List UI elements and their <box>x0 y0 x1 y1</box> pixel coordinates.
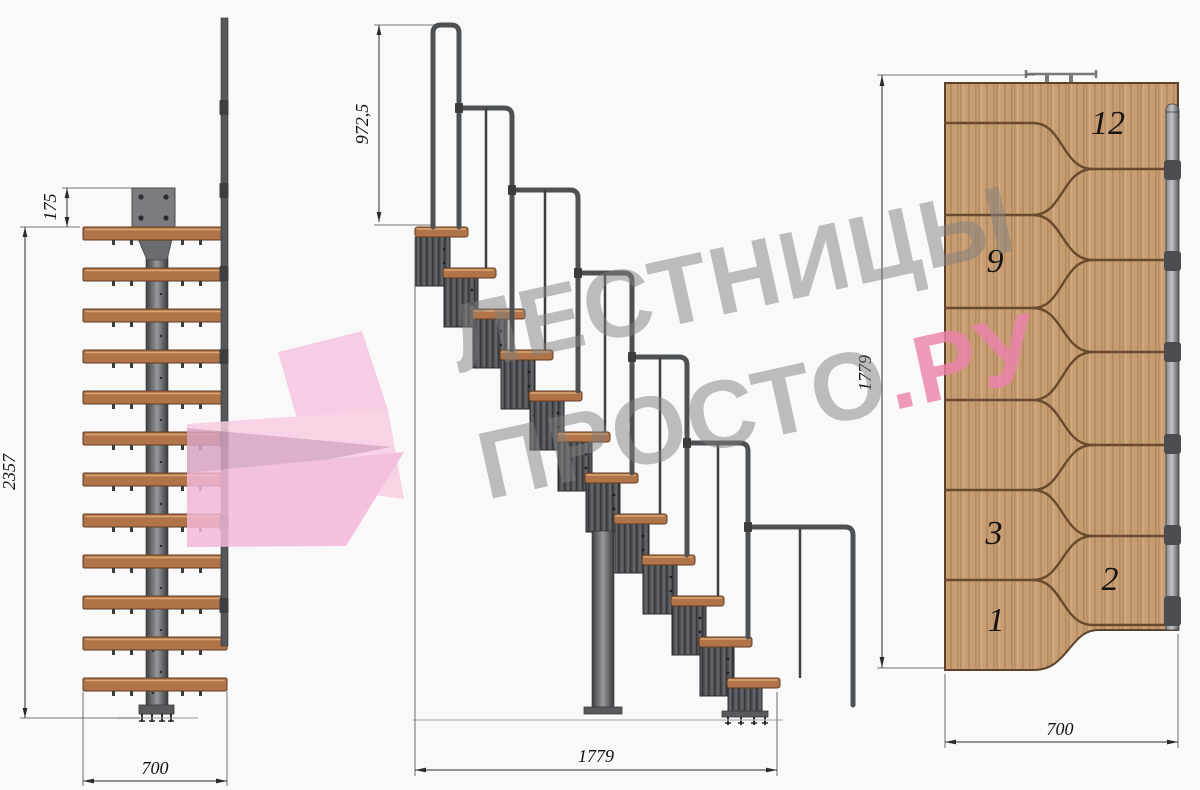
step-number-9: 9 <box>987 243 1004 280</box>
plan-view: 12 9 3 2 1 <box>945 70 1181 670</box>
svg-text:175: 175 <box>40 194 60 221</box>
step-number-1: 1 <box>988 602 1005 639</box>
svg-text:1779: 1779 <box>855 355 875 391</box>
step-number-12: 12 <box>1091 105 1125 142</box>
staircase-drawing: 12 9 3 2 1 175 2357 <box>0 0 1200 790</box>
handrail-plan <box>1164 104 1181 630</box>
rail-clamp <box>744 522 752 532</box>
rail-clamp <box>455 103 463 113</box>
svg-text:1779: 1779 <box>578 746 614 766</box>
step-number-3: 3 <box>985 515 1003 552</box>
dim-rail-height-972-5: 972,5 <box>352 25 442 225</box>
handrail-loop-top <box>433 25 459 227</box>
handrail-bottom-joint <box>1164 596 1181 626</box>
svg-text:700: 700 <box>142 758 169 778</box>
rail-clamp <box>574 268 582 278</box>
support-column-base <box>584 707 622 714</box>
plate-bolt <box>163 194 168 199</box>
side-elevation-view <box>413 25 853 725</box>
rail-clamp <box>508 185 516 195</box>
technical-drawing-page: 12 9 3 2 1 175 2357 <box>0 0 1200 790</box>
plate-bolt <box>138 215 143 220</box>
top-mount-bracket <box>1026 70 1096 78</box>
bottom-anchor-bolts <box>725 717 768 725</box>
column-base-plate <box>139 705 174 714</box>
front-elevation-view <box>83 18 229 722</box>
support-column-side <box>592 531 614 709</box>
wall-mount-plate <box>132 188 175 227</box>
plate-bolt <box>138 194 143 199</box>
plate-bolt <box>163 215 168 220</box>
dim-offset-175: 175 <box>40 188 134 227</box>
step-number-2: 2 <box>1102 561 1119 598</box>
rail-clamp <box>628 352 636 362</box>
rail-clamp <box>683 438 691 448</box>
handrail-bar <box>1166 112 1179 630</box>
svg-text:700: 700 <box>1047 719 1074 739</box>
bottom-module-base-plate <box>722 711 768 717</box>
svg-text:972,5: 972,5 <box>352 104 372 145</box>
svg-text:2357: 2357 <box>0 453 19 490</box>
